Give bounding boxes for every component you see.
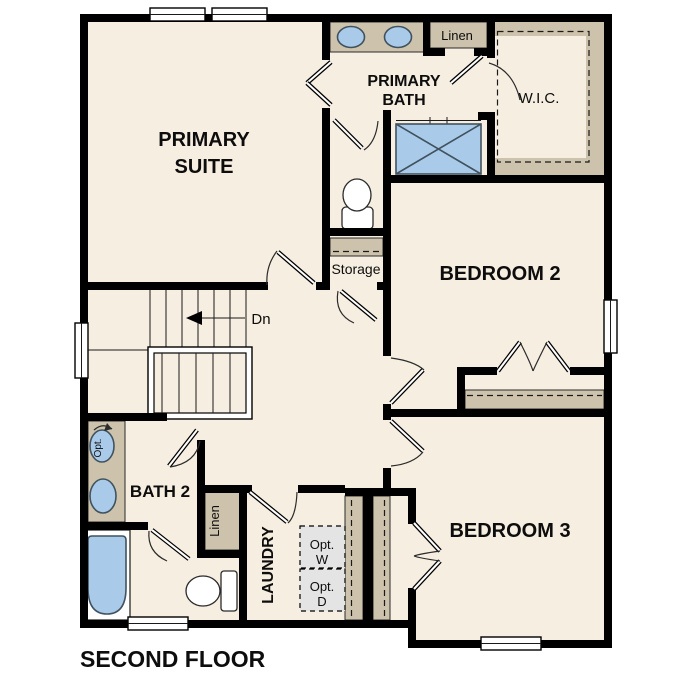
optional-dryer-label-line2: D <box>317 594 326 609</box>
primary-bath-sink-right <box>385 27 412 48</box>
primary-bath-label-line2: BATH <box>382 92 425 109</box>
primary-suite-label-line1: PRIMARY <box>158 129 250 151</box>
bath2-toilet-tank <box>221 571 237 611</box>
bedroom2-closet-shelf <box>465 390 604 409</box>
floor-plan-drawing: PRIMARY SUITE PRIMARY BATH W.I.C. Linen … <box>0 0 687 687</box>
bedroom2-label: BEDROOM 2 <box>439 263 560 285</box>
bath2-label: BATH 2 <box>130 482 190 501</box>
wic-label: W.I.C. <box>519 90 560 107</box>
bedroom3-label: BEDROOM 3 <box>449 520 570 542</box>
laundry-label: LAUNDRY <box>260 526 277 604</box>
primary-bath-sink-left <box>338 27 365 48</box>
bathtub <box>88 536 126 614</box>
floor-plan-page: PRIMARY SUITE PRIMARY BATH W.I.C. Linen … <box>0 0 687 687</box>
primary-suite-label-line2: SUITE <box>175 156 234 178</box>
laundry-cabinet <box>345 496 363 620</box>
storage-shelf <box>330 238 383 256</box>
optional-washer-label-line2: W <box>316 552 329 567</box>
stairs-dn-label: Dn <box>251 311 270 328</box>
bath2-toilet-bowl <box>186 576 220 606</box>
primary-bath-label-line1: PRIMARY <box>367 73 441 90</box>
optional-sink-label: Opt. <box>93 439 104 458</box>
optional-dryer-label-line1: Opt. <box>310 579 335 594</box>
bedroom3-closet-shelf <box>373 496 390 620</box>
storage-label: Storage <box>331 261 380 277</box>
stair-railing-inner <box>154 353 246 413</box>
primary-toilet-bowl <box>343 179 371 211</box>
linen-lower-label: Linen <box>207 505 222 537</box>
bath2-sink <box>90 479 116 513</box>
plan-title: SECOND FLOOR <box>80 646 266 672</box>
floor-bedroom3-extension <box>408 560 612 648</box>
optional-washer-label-line1: Opt. <box>310 537 335 552</box>
linen-upper-label: Linen <box>441 28 473 43</box>
